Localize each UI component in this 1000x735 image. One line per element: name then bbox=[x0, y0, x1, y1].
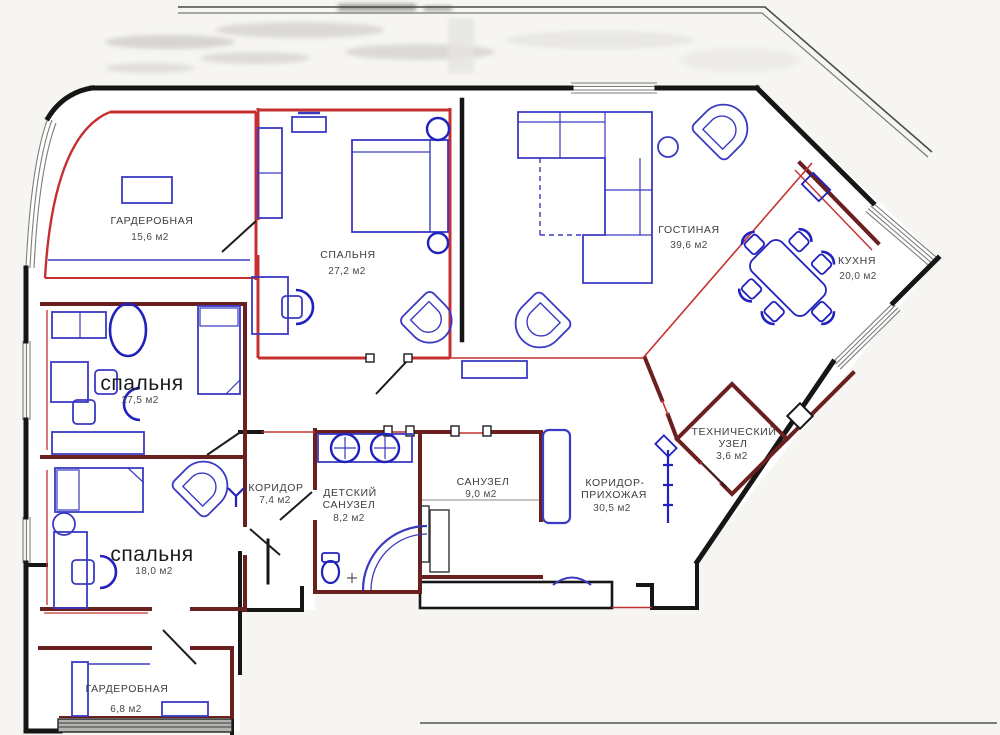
svg-text:30,5 м2: 30,5 м2 bbox=[593, 503, 631, 514]
svg-text:8,2 м2: 8,2 м2 bbox=[333, 513, 365, 524]
svg-text:ГОСТИНАЯ: ГОСТИНАЯ bbox=[658, 224, 719, 236]
svg-text:7,4 м2: 7,4 м2 bbox=[259, 495, 291, 506]
watermark-smudges bbox=[105, 4, 800, 73]
svg-text:СПАЛЬНЯ: СПАЛЬНЯ bbox=[320, 249, 376, 261]
floor-plan-drawing: ГАРДЕРОБНАЯ 15,6 м2 СПАЛЬНЯ 27,2 м2 ГОСТ… bbox=[0, 0, 1000, 735]
svg-text:спальня: спальня bbox=[110, 543, 193, 566]
svg-text:ГАРДЕРОБНАЯ: ГАРДЕРОБНАЯ bbox=[110, 215, 193, 227]
svg-text:20,0 м2: 20,0 м2 bbox=[839, 271, 877, 282]
svg-text:УЗЕЛ: УЗЕЛ bbox=[718, 438, 747, 450]
svg-text:КУХНЯ: КУХНЯ bbox=[838, 255, 876, 267]
svg-text:18,0 м2: 18,0 м2 bbox=[135, 566, 173, 577]
svg-text:27,2 м2: 27,2 м2 bbox=[328, 266, 366, 277]
svg-text:39,6 м2: 39,6 м2 bbox=[670, 240, 708, 251]
svg-text:15,6 м2: 15,6 м2 bbox=[131, 232, 169, 243]
svg-text:САНУЗЕЛ: САНУЗЕЛ bbox=[323, 499, 376, 511]
svg-text:6,8 м2: 6,8 м2 bbox=[110, 704, 142, 715]
svg-text:КОРИДОР: КОРИДОР bbox=[248, 482, 303, 494]
floor-plan-page: ГАРДЕРОБНАЯ 15,6 м2 СПАЛЬНЯ 27,2 м2 ГОСТ… bbox=[0, 0, 1000, 735]
svg-text:ПРИХОЖАЯ: ПРИХОЖАЯ bbox=[581, 489, 647, 501]
svg-text:17,5 м2: 17,5 м2 bbox=[121, 395, 159, 406]
svg-text:САНУЗЕЛ: САНУЗЕЛ bbox=[457, 476, 510, 488]
svg-text:ТЕХНИЧЕСКИЙ: ТЕХНИЧЕСКИЙ bbox=[692, 425, 777, 438]
svg-text:спальня: спальня bbox=[100, 372, 183, 395]
svg-text:ДЕТСКИЙ: ДЕТСКИЙ bbox=[323, 486, 377, 499]
svg-text:3,6 м2: 3,6 м2 bbox=[716, 451, 748, 462]
svg-text:ГАРДЕРОБНАЯ: ГАРДЕРОБНАЯ bbox=[85, 683, 168, 695]
svg-text:9,0 м2: 9,0 м2 bbox=[465, 489, 497, 500]
svg-text:КОРИДОР-: КОРИДОР- bbox=[585, 477, 644, 489]
bottom-window-strip bbox=[58, 719, 232, 732]
